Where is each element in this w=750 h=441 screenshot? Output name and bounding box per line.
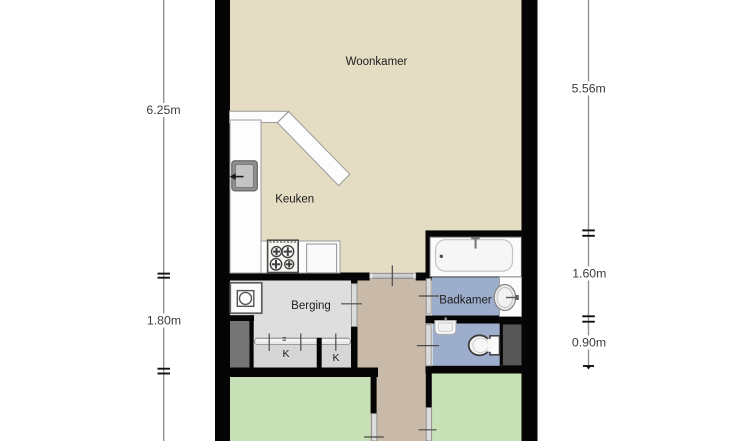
svg-text:K: K (332, 352, 339, 364)
svg-text:6.25m: 6.25m (146, 103, 180, 117)
svg-text:1.80m: 1.80m (147, 314, 181, 328)
svg-text:Keuken: Keuken (275, 194, 314, 206)
svg-text:Berging: Berging (291, 300, 331, 312)
svg-text:Woonkamer: Woonkamer (346, 56, 408, 68)
svg-text:K: K (282, 348, 289, 360)
svg-text:5.56m: 5.56m (572, 82, 606, 96)
svg-text:1.60m: 1.60m (572, 267, 606, 281)
svg-text:0.90m: 0.90m (572, 336, 606, 350)
svg-text:Badkamer: Badkamer (439, 295, 492, 307)
